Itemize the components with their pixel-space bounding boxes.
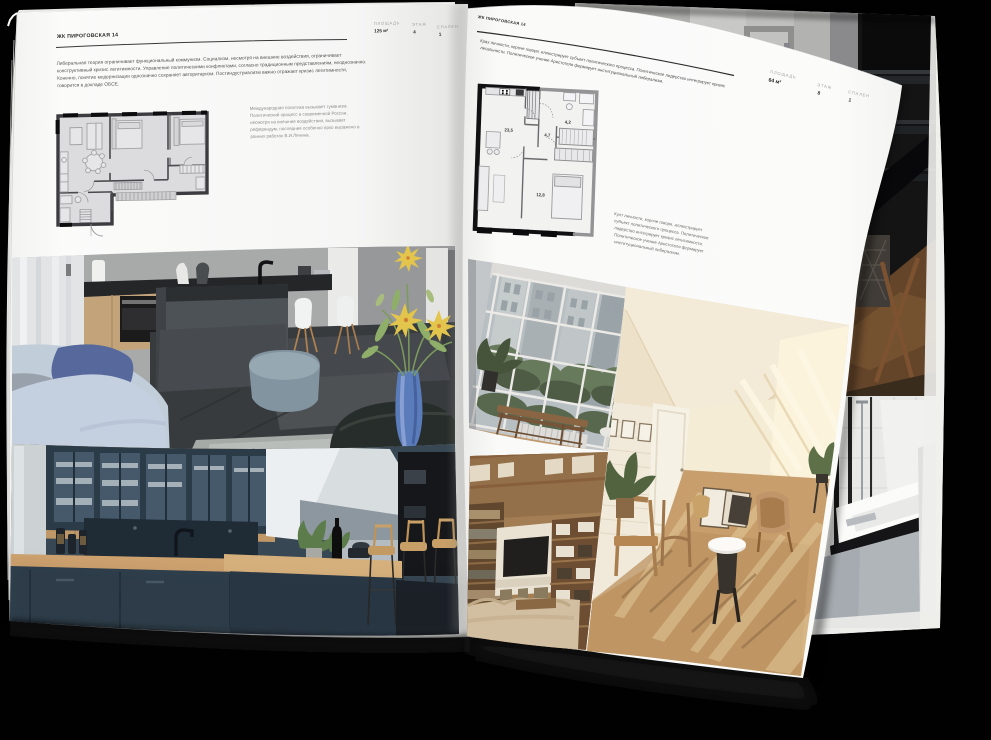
svg-text:125 м²: 125 м²	[374, 28, 389, 33]
svg-text:23,5: 23,5	[504, 127, 513, 132]
svg-text:4,7: 4,7	[544, 132, 551, 137]
svg-text:ПЛОЩАДЬ: ПЛОЩАДЬ	[374, 20, 400, 26]
svg-text:4,2: 4,2	[565, 119, 572, 124]
svg-text:ЭТАЖ: ЭТАЖ	[412, 21, 427, 27]
svg-text:12,8: 12,8	[536, 192, 545, 197]
